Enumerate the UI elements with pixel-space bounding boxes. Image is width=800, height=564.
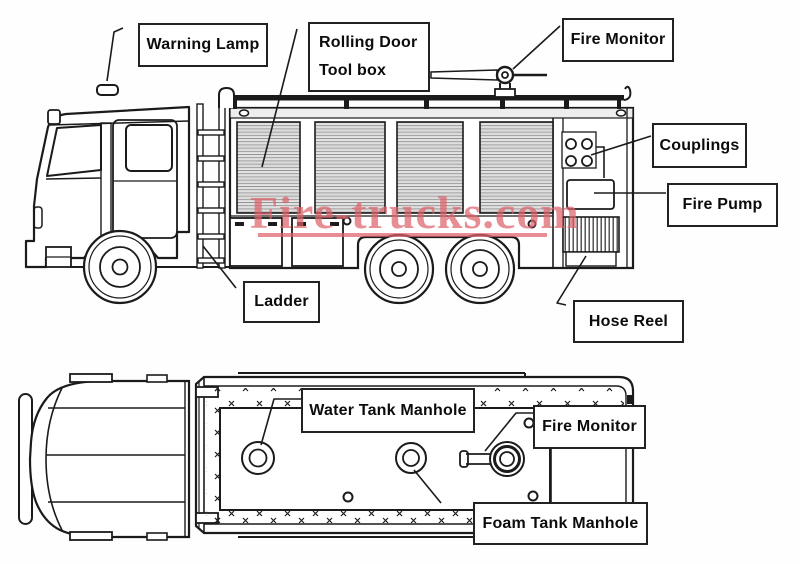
- foam-tank-manhole-shape: [396, 443, 426, 473]
- label-hose-reel-text: Hose Reel: [589, 313, 668, 331]
- label-fire-pump-text: Fire Pump: [682, 196, 762, 214]
- label-foam-tank-manhole: Foam Tank Manhole: [473, 502, 648, 545]
- hose-reel-shape: [563, 217, 619, 266]
- deck-fitting: [529, 492, 538, 501]
- warning-lamp-shape: [97, 85, 118, 95]
- label-tool-box-text: Tool box: [319, 62, 386, 80]
- label-foam-tank-manhole-text: Foam Tank Manhole: [482, 515, 638, 533]
- watermark-underline: [258, 233, 547, 237]
- label-warning-lamp: Warning Lamp: [138, 23, 268, 67]
- label-ladder: Ladder: [243, 281, 320, 323]
- label-fire-monitor-side-text: Fire Monitor: [571, 31, 666, 49]
- fire-monitor-side-shape: [431, 67, 547, 97]
- label-rolling-door-text: Rolling Door: [319, 34, 417, 52]
- label-fire-monitor-side: Fire Monitor: [562, 18, 674, 62]
- label-water-tank-manhole: Water Tank Manhole: [301, 388, 475, 433]
- fire-pump-shape: [567, 180, 614, 209]
- label-fire-pump: Fire Pump: [667, 183, 778, 227]
- label-fire-monitor-top: Fire Monitor: [533, 405, 646, 449]
- label-couplings: Couplings: [652, 123, 747, 168]
- label-fire-monitor-top-text: Fire Monitor: [542, 418, 637, 436]
- couplings-shape: [562, 132, 596, 168]
- label-water-tank-manhole-text: Water Tank Manhole: [309, 402, 466, 420]
- label-couplings-text: Couplings: [659, 137, 739, 155]
- label-rolling-door-tool-box: Rolling Door Tool box: [308, 22, 430, 92]
- cab-plan: [19, 374, 189, 540]
- label-warning-lamp-text: Warning Lamp: [147, 36, 260, 54]
- label-hose-reel: Hose Reel: [573, 300, 684, 343]
- water-tank-manhole-shape: [242, 442, 274, 474]
- ladder: [197, 104, 225, 268]
- fire-truck-diagram: Fire-trucks.com Warning Lamp Rolling Doo…: [0, 0, 800, 564]
- label-ladder-text: Ladder: [254, 293, 309, 311]
- deck-fitting: [344, 493, 353, 502]
